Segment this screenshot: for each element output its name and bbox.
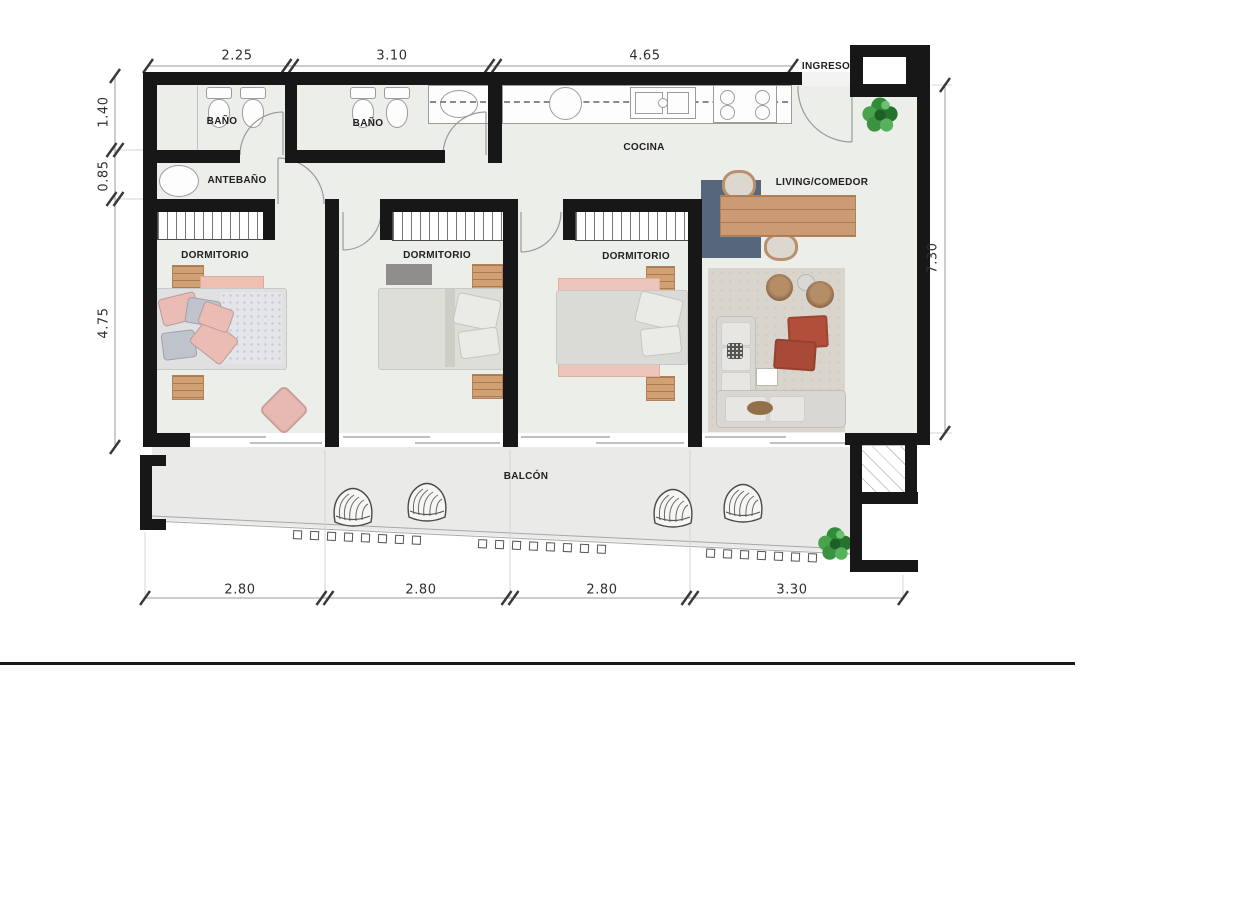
armchair-round	[806, 281, 834, 308]
wicker-chair-icon	[408, 484, 446, 522]
burner	[755, 90, 770, 105]
room-label-entry: INGRESO	[802, 62, 850, 72]
kitchen-double-sink	[630, 87, 696, 119]
wall	[143, 72, 157, 447]
wall	[850, 433, 862, 572]
dining-table	[720, 195, 856, 237]
dim-left-1: 1.40	[98, 96, 111, 127]
wall	[297, 150, 445, 163]
side-table	[756, 368, 778, 386]
wall	[563, 199, 702, 212]
bathroom2-washbasin	[440, 90, 478, 118]
wall	[152, 519, 166, 530]
dim-bottom-4: 3.30	[776, 584, 807, 597]
antebathroom-basin	[159, 165, 199, 197]
floor-entry-threshold	[802, 72, 852, 86]
wall	[380, 199, 518, 212]
ottoman	[773, 339, 817, 372]
wicker-chair-icon	[334, 489, 372, 527]
dim-left-2: 0.85	[98, 160, 111, 191]
dim-right-1: 7.30	[927, 242, 940, 273]
closet	[157, 210, 265, 240]
floor-balcony	[152, 447, 850, 553]
bed-double	[155, 288, 287, 370]
dim-top-3: 4.65	[629, 50, 660, 63]
dining-chair	[764, 233, 798, 261]
balustrade	[706, 548, 817, 562]
nightstand	[472, 264, 503, 289]
dim-bottom-2: 2.80	[405, 584, 436, 597]
wall	[152, 455, 166, 466]
room-label-bathroom-2: BAÑO	[353, 119, 384, 129]
wall	[140, 455, 152, 530]
dim-top-1: 2.25	[221, 50, 252, 63]
balustrade	[478, 539, 606, 554]
plant-icon	[818, 527, 852, 560]
wall	[488, 72, 502, 163]
counter-centerline	[430, 101, 486, 103]
dim-bottom-3: 2.80	[586, 584, 617, 597]
wall	[143, 433, 190, 447]
wall	[850, 560, 918, 572]
wall	[688, 199, 702, 447]
room-label-kitchen: COCINA	[623, 143, 664, 153]
wall	[325, 199, 339, 447]
wicker-chair-icon	[654, 490, 692, 528]
wall	[563, 212, 575, 240]
room-label-bathroom-1: BAÑO	[207, 117, 238, 127]
sink-faucet	[658, 98, 668, 108]
bidet	[238, 87, 266, 129]
dim-left-3: 4.75	[98, 307, 111, 338]
nightstand	[646, 376, 675, 401]
bed-double	[378, 288, 505, 370]
closet	[575, 211, 689, 241]
sliding-door	[190, 437, 850, 443]
dim-top-2: 3.10	[376, 50, 407, 63]
stove	[713, 85, 777, 123]
wall	[285, 72, 297, 163]
nightstand	[472, 374, 503, 399]
shaft-hatch	[861, 445, 908, 494]
wall	[143, 199, 275, 212]
bidet	[382, 87, 410, 129]
burner	[720, 105, 735, 120]
floor-plan-page: BAÑO BAÑO ANTEBAÑO DORMITORIO DORMITORIO…	[0, 0, 1247, 900]
tray	[747, 401, 773, 415]
bed-double	[556, 290, 688, 365]
room-label-balcony: BALCÓN	[504, 472, 549, 482]
pattern-pillow	[727, 343, 743, 359]
balustrade	[293, 530, 421, 545]
room-label-living: LIVING/COMEDOR	[776, 178, 869, 188]
sofa-chaise	[716, 390, 846, 428]
room-label-bedroom-2: DORMITORIO	[403, 251, 471, 261]
sink-basin	[667, 92, 689, 114]
kitchen-round-sink	[549, 87, 582, 120]
room-label-bedroom-3: DORMITORIO	[602, 252, 670, 262]
page-divider-line	[0, 662, 1075, 665]
wall-niche	[863, 57, 906, 84]
wall	[143, 72, 802, 85]
dim-bottom-1: 2.80	[224, 584, 255, 597]
wall	[380, 212, 392, 240]
burner	[720, 90, 735, 105]
shower-divider	[197, 86, 198, 150]
wall	[143, 150, 240, 163]
armchair-round	[766, 274, 793, 301]
rug	[386, 264, 432, 285]
wicker-chair-icon	[724, 485, 762, 523]
nightstand	[172, 375, 204, 400]
burner	[755, 105, 770, 120]
room-label-antebathroom: ANTEBAÑO	[207, 176, 266, 186]
closet	[392, 211, 508, 241]
room-label-bedroom-1: DORMITORIO	[181, 251, 249, 261]
wall	[503, 199, 518, 447]
wall	[263, 212, 275, 240]
